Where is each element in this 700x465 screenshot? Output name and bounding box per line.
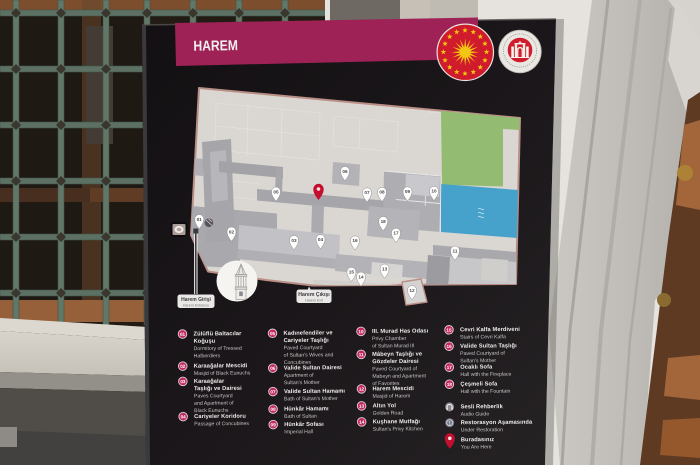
- svg-text:Harem Entrance: Harem Entrance: [183, 303, 209, 307]
- svg-text:Imperial Hall: Imperial Hall: [284, 429, 313, 435]
- svg-text:12: 12: [359, 387, 365, 392]
- svg-text:Hall with the Fountain: Hall with the Fountain: [460, 389, 510, 395]
- svg-text:Zülüflü Baltacılar: Zülüflü Baltacılar: [193, 331, 242, 337]
- svg-text:16: 16: [447, 344, 453, 349]
- svg-text:03: 03: [291, 238, 297, 243]
- svg-text:Bath of Sultan's Mother: Bath of Sultan's Mother: [284, 396, 338, 402]
- svg-text:17: 17: [393, 231, 399, 236]
- svg-text:Ocaklı Sofa: Ocaklı Sofa: [460, 364, 493, 370]
- svg-text:03: 03: [180, 379, 186, 384]
- svg-text:02: 02: [229, 229, 235, 234]
- svg-text:Paved Courtyard of: Paved Courtyard of: [372, 366, 417, 372]
- svg-text:Bath of Sultan: Bath of Sultan: [284, 414, 317, 420]
- svg-text:Restorasyon Aşamasında: Restorasyon Aşamasında: [461, 420, 533, 427]
- svg-text:Mâbeyn Taşlığı ve: Mâbeyn Taşlığı ve: [372, 352, 422, 358]
- svg-text:05: 05: [273, 189, 279, 194]
- svg-text:Cevri Kalfa Merdiveni: Cevri Kalfa Merdiveni: [460, 327, 520, 333]
- svg-text:17: 17: [447, 365, 453, 370]
- svg-text:Audio Guide: Audio Guide: [461, 411, 490, 417]
- svg-text:Harem Girişi: Harem Girişi: [181, 297, 211, 303]
- svg-text:Buradasınız: Buradasınız: [461, 437, 494, 443]
- svg-text:Harem Mescidi: Harem Mescidi: [372, 386, 414, 392]
- svg-text:14: 14: [358, 274, 364, 279]
- svg-text:Cariyeler Koridoru: Cariyeler Koridoru: [194, 414, 246, 420]
- svg-text:01: 01: [197, 217, 203, 222]
- svg-text:Sultan's Mother: Sultan's Mother: [284, 380, 320, 386]
- svg-text:Cariyeler Taşlığı: Cariyeler Taşlığı: [284, 338, 330, 344]
- svg-text:Halberdiers: Halberdiers: [194, 353, 221, 359]
- svg-text:Masjid of Black Eunuchs: Masjid of Black Eunuchs: [194, 370, 251, 376]
- svg-text:of Sultan Murad III: of Sultan Murad III: [372, 343, 414, 349]
- svg-text:Gözdeler Dairesi: Gözdeler Dairesi: [372, 359, 419, 365]
- svg-text:02: 02: [180, 364, 186, 369]
- svg-text:Harem Çıkışı: Harem Çıkışı: [298, 292, 330, 298]
- svg-text:Karaağalar Mescidi: Karaağalar Mescidi: [194, 363, 248, 369]
- svg-text:10: 10: [431, 189, 437, 194]
- svg-text:Apartment of: Apartment of: [284, 373, 314, 379]
- svg-text:Taşlığı ve Dairesi: Taşlığı ve Dairesi: [194, 386, 242, 392]
- svg-text:Masjid of Harem: Masjid of Harem: [372, 393, 410, 399]
- svg-text:11: 11: [359, 352, 364, 357]
- svg-text:Valide Sultan Hamamı: Valide Sultan Hamamı: [284, 389, 345, 395]
- svg-text:You Are Here: You Are Here: [461, 444, 492, 450]
- svg-text:01: 01: [180, 332, 186, 337]
- svg-text:09: 09: [405, 189, 411, 194]
- svg-text:04: 04: [318, 237, 324, 242]
- svg-text:Koğuşu: Koğuşu: [194, 339, 216, 345]
- svg-text:15: 15: [446, 328, 452, 333]
- svg-text:Paves Courtyard: Paves Courtyard: [194, 393, 233, 399]
- svg-text:Kadınefendiler ve: Kadınefendiler ve: [283, 330, 332, 336]
- svg-text:Paved Courtyard: Paved Courtyard: [284, 345, 323, 351]
- svg-text:Paved Courtyard of: Paved Courtyard of: [460, 351, 505, 357]
- svg-text:!: !: [449, 421, 451, 427]
- svg-text:15: 15: [349, 270, 355, 275]
- svg-text:06: 06: [342, 169, 348, 174]
- svg-text:08: 08: [379, 190, 385, 195]
- svg-text:Sultan's Privy Kitchen: Sultan's Privy Kitchen: [373, 426, 423, 432]
- svg-text:Passage of Concubines: Passage of Concubines: [194, 421, 249, 427]
- svg-text:Kuşhane Mutfağı: Kuşhane Mutfağı: [373, 419, 421, 425]
- svg-text:Hünkâr Hamamı: Hünkâr Hamamı: [284, 406, 329, 412]
- svg-text:Sesli Rehberlik: Sesli Rehberlik: [461, 404, 504, 410]
- svg-text:18: 18: [381, 219, 387, 224]
- svg-text:Dormitory of Tressed: Dormitory of Tressed: [194, 346, 242, 352]
- svg-text:12: 12: [409, 288, 415, 293]
- svg-text:Golden Road: Golden Road: [373, 410, 404, 416]
- svg-text:Valide Sultan Taşlığı: Valide Sultan Taşlığı: [460, 343, 517, 349]
- svg-text:13: 13: [359, 404, 365, 409]
- svg-text:07: 07: [364, 190, 370, 195]
- svg-text:Privy Chamber: Privy Chamber: [372, 336, 407, 342]
- svg-text:III. Murad Has Odası: III. Murad Has Odası: [372, 328, 429, 334]
- svg-text:18: 18: [447, 382, 453, 387]
- svg-text:07: 07: [270, 389, 276, 394]
- svg-text:Under Restoration: Under Restoration: [461, 427, 503, 433]
- svg-text:Çeşmeli Sofa: Çeşmeli Sofa: [460, 381, 498, 387]
- svg-text:05: 05: [270, 331, 276, 336]
- svg-text:Hünkâr Sofası: Hünkâr Sofası: [284, 422, 324, 428]
- svg-text:13: 13: [382, 266, 388, 271]
- svg-text:Harem Exit: Harem Exit: [305, 298, 323, 302]
- svg-text:10: 10: [358, 329, 364, 334]
- svg-text:Mabeyn and Apartment: Mabeyn and Apartment: [372, 373, 426, 379]
- svg-text:14: 14: [359, 420, 365, 425]
- svg-text:Stairs of Cevri Kalfa: Stairs of Cevri Kalfa: [460, 334, 506, 340]
- svg-text:16: 16: [352, 238, 358, 243]
- svg-text:Sultan's Mother: Sultan's Mother: [460, 358, 496, 364]
- svg-text:HAREM: HAREM: [193, 38, 238, 55]
- svg-text:11: 11: [453, 248, 458, 253]
- svg-text:Hall with the Fireplace: Hall with the Fireplace: [460, 372, 511, 378]
- svg-text:04: 04: [181, 414, 187, 419]
- svg-text:Karaağalar: Karaağalar: [194, 379, 225, 385]
- svg-text:of Sultan's Wives and: of Sultan's Wives and: [284, 352, 334, 358]
- svg-text:Altın Yol: Altın Yol: [373, 403, 397, 409]
- svg-text:06: 06: [270, 366, 276, 371]
- svg-text:and Apartment of: and Apartment of: [194, 400, 234, 406]
- svg-text:09: 09: [271, 422, 277, 427]
- svg-text:08: 08: [271, 407, 277, 412]
- svg-text:Valide Sultan Dairesi: Valide Sultan Dairesi: [284, 365, 342, 371]
